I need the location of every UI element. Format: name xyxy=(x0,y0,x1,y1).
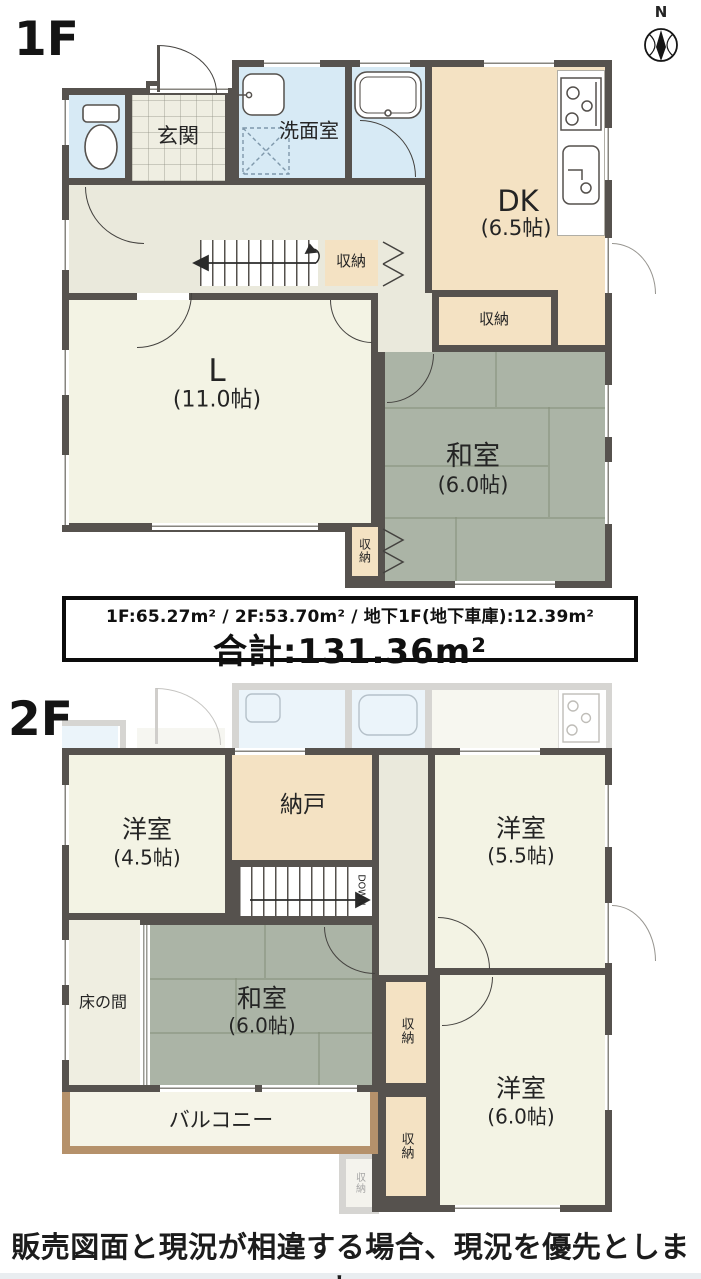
window xyxy=(605,785,612,847)
f1-dk-label: DK xyxy=(497,186,538,216)
tatami-line xyxy=(455,517,457,581)
window xyxy=(460,748,540,755)
f1-genkan-label: 玄関 xyxy=(157,126,199,148)
floor1-label: 1F xyxy=(14,16,79,63)
f1-storage-hall-label: 収納 xyxy=(336,254,366,270)
f2-tokonoma-label: 床の間 xyxy=(79,995,127,1012)
window xyxy=(264,60,320,67)
f1-stairs xyxy=(200,240,318,286)
tatami-line xyxy=(150,978,372,980)
tatami-line xyxy=(548,407,550,517)
f1-washitsu-label: 和室 xyxy=(446,443,500,471)
f1-dk-size-label: (6.5帖) xyxy=(481,218,552,240)
tatami-line xyxy=(264,925,266,978)
tatami-line xyxy=(385,407,605,409)
f1-hall-ext-floor xyxy=(378,293,432,352)
f2-balcony-slider xyxy=(160,1085,255,1092)
floor2-label: 2F xyxy=(8,696,73,743)
f1-ghost-storage-label: 収納 xyxy=(352,1172,367,1194)
f2-yoshitsu60-size-label: (6.0帖) xyxy=(487,1107,554,1128)
window xyxy=(235,748,305,755)
window xyxy=(455,581,555,588)
window xyxy=(605,1035,612,1110)
f2-washitsu-label: 和室 xyxy=(237,986,287,1012)
window xyxy=(62,785,69,845)
disclaimer-note: 販売図面と現況が相違する場合、現況を優先とします。 xyxy=(0,1224,701,1279)
window xyxy=(605,462,612,524)
floor-plan-canvas: 1F N 玄関 洗面室 DK xyxy=(0,0,701,1279)
f2-yoshitsu45-label: 洋室 xyxy=(122,817,172,843)
window xyxy=(605,385,612,437)
window xyxy=(152,523,318,530)
f2-stairs-down-label: DOWN xyxy=(356,874,367,905)
area-summary-box: 1F:65.27m² / 2F:53.70m² / 地下1F(地下車庫):12.… xyxy=(62,596,638,662)
compass-north-label: N xyxy=(655,5,668,21)
f2-shoji-screen xyxy=(140,925,150,1085)
f2-balcony-label: バルコニー xyxy=(169,1110,274,1132)
tatami-line xyxy=(318,1032,320,1085)
f1-dk-floor-ext xyxy=(558,285,605,345)
window xyxy=(62,220,69,270)
f2-exterior-door-leaf xyxy=(605,903,612,963)
f1-living-label: L xyxy=(208,355,225,387)
f1-living-size-label: (11.0帖) xyxy=(173,390,261,413)
window xyxy=(62,940,69,985)
f1-dk-door-leaf xyxy=(605,238,612,293)
window xyxy=(360,60,410,67)
f2-yoshitsu45-size-label: (4.5帖) xyxy=(113,848,180,869)
f2-storage-b-label: 収納 xyxy=(397,1132,416,1160)
f1-toilet-room xyxy=(69,95,125,178)
f2-balcony-slider xyxy=(262,1085,357,1092)
f2-yoshitsu55-size-label: (5.5帖) xyxy=(487,846,554,867)
area-total: 合計:131.36m² xyxy=(66,624,634,673)
window xyxy=(62,100,69,145)
f2-yoshitsu55-label: 洋室 xyxy=(496,816,546,842)
f2-wall-stairs-top xyxy=(232,860,372,867)
f1-storage-dk-label: 収納 xyxy=(479,312,509,328)
f2-hall-floor xyxy=(379,755,428,975)
tatami-line xyxy=(385,517,605,519)
f1-senmen-label: 洗面室 xyxy=(279,121,339,142)
window xyxy=(484,60,554,67)
f2-washitsu-size-label: (6.0帖) xyxy=(228,1016,295,1037)
f1-washitsu-size-label: (6.0帖) xyxy=(438,475,509,497)
tatami-line xyxy=(495,352,497,407)
f1-entrance-door-leaf xyxy=(157,45,160,92)
f2-yoshitsu60-label: 洋室 xyxy=(496,1076,546,1102)
f1-kitchen-counter xyxy=(557,70,605,236)
window xyxy=(455,1205,560,1212)
f1-storage-washitsu-label: 収納 xyxy=(357,538,374,564)
window xyxy=(605,128,612,180)
window xyxy=(62,1005,69,1060)
f2-storage-a-label: 収納 xyxy=(397,1017,416,1045)
window xyxy=(62,350,69,395)
f2-nando-label: 納戸 xyxy=(280,794,326,818)
f2-stairs xyxy=(239,867,351,916)
window xyxy=(62,455,69,525)
